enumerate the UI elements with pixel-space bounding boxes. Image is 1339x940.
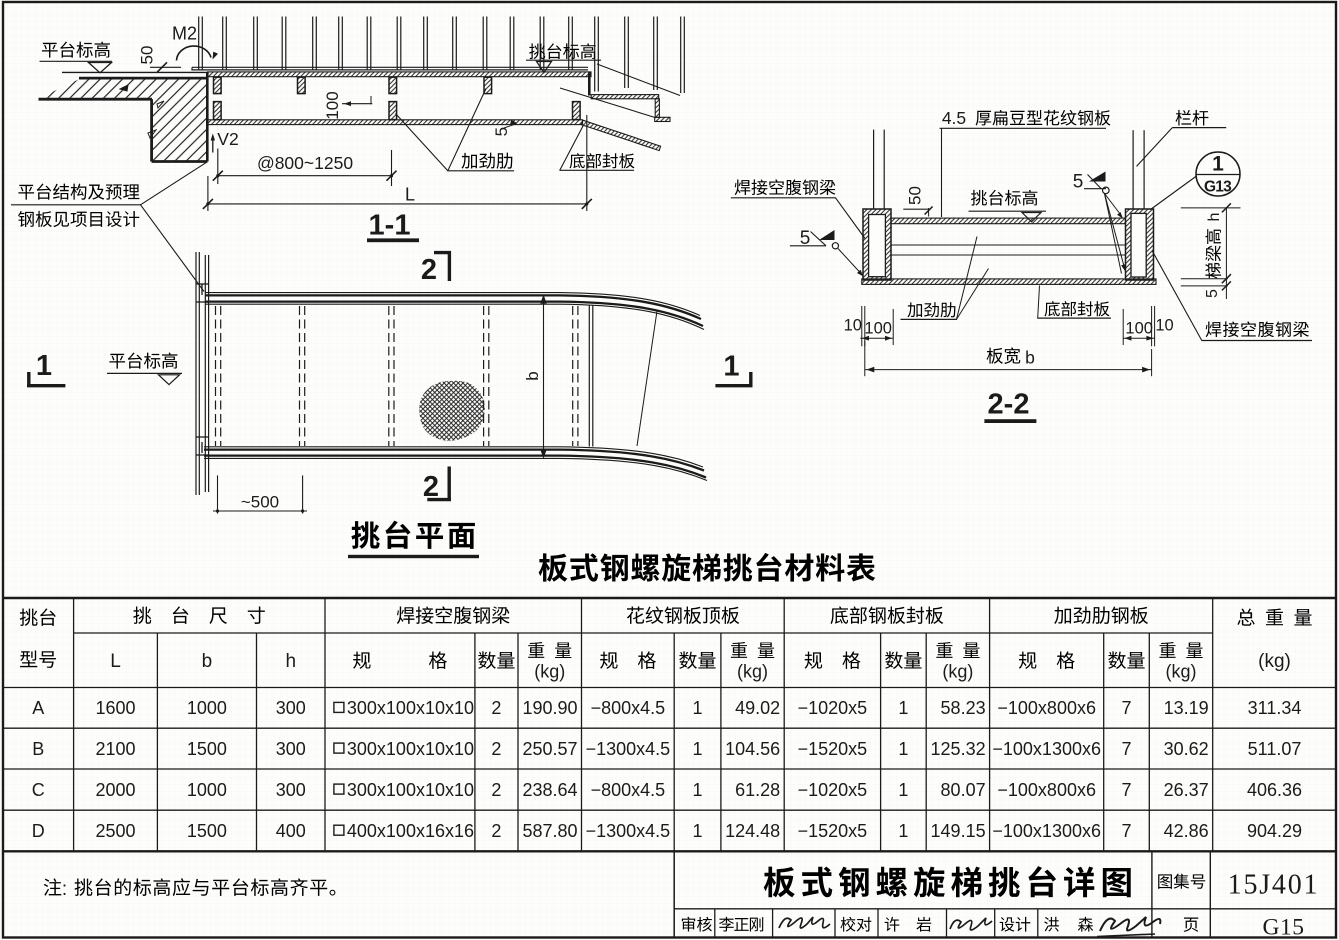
svg-text:13.19: 13.19 [1164, 698, 1209, 718]
svg-text:300x100x10x10: 300x100x10x10 [347, 698, 474, 718]
svg-text:10: 10 [844, 316, 862, 334]
svg-text:(kg): (kg) [1258, 651, 1291, 672]
svg-text:b: b [1025, 348, 1035, 368]
svg-text:b: b [202, 651, 213, 672]
svg-text:104.56: 104.56 [725, 739, 780, 759]
svg-text:L: L [405, 185, 415, 205]
svg-text:h: h [1206, 213, 1223, 222]
svg-text:−800x4.5: −800x4.5 [591, 698, 666, 718]
svg-text:300: 300 [276, 698, 306, 718]
svg-text:h: h [286, 651, 297, 672]
svg-text:42.86: 42.86 [1164, 821, 1209, 841]
svg-text:5: 5 [492, 127, 511, 136]
svg-text:61.28: 61.28 [735, 780, 780, 800]
svg-text:400x100x16x16: 400x100x16x16 [347, 821, 474, 841]
svg-text:−1300x4.5: −1300x4.5 [586, 821, 671, 841]
svg-text:−1020x5: −1020x5 [798, 698, 868, 718]
svg-text:125.32: 125.32 [931, 739, 986, 759]
svg-text:50: 50 [906, 186, 925, 205]
svg-text:~500: ~500 [241, 493, 279, 512]
svg-text:58.23: 58.23 [941, 698, 986, 718]
svg-text:−800x4.5: −800x4.5 [591, 780, 666, 800]
svg-text:2500: 2500 [95, 821, 135, 841]
svg-text:7: 7 [1121, 698, 1131, 718]
svg-text:1: 1 [692, 821, 702, 841]
svg-text:1500: 1500 [187, 821, 227, 841]
svg-text:250.57: 250.57 [522, 739, 577, 759]
svg-text:300x100x10x10: 300x100x10x10 [347, 739, 474, 759]
svg-text:1-1: 1-1 [369, 210, 411, 242]
svg-text:1: 1 [692, 698, 702, 718]
svg-text:511.07: 511.07 [1248, 739, 1302, 759]
svg-text:2: 2 [491, 821, 501, 841]
svg-text:30.62: 30.62 [1164, 739, 1209, 759]
svg-text:2: 2 [491, 698, 501, 718]
svg-text:1: 1 [898, 698, 908, 718]
svg-text:2: 2 [491, 739, 501, 759]
svg-text:1500: 1500 [187, 739, 227, 759]
svg-text:b: b [523, 371, 542, 380]
svg-text:100: 100 [1125, 319, 1153, 337]
svg-text:904.29: 904.29 [1247, 821, 1302, 841]
svg-text:(kg): (kg) [534, 661, 565, 681]
svg-text:50: 50 [138, 46, 157, 65]
svg-text:2-2: 2-2 [988, 389, 1030, 421]
svg-text:7: 7 [1121, 821, 1131, 841]
svg-text:10: 10 [1155, 316, 1173, 334]
svg-text:1: 1 [898, 821, 908, 841]
svg-text:80.07: 80.07 [941, 780, 986, 800]
svg-text:−1520x5: −1520x5 [798, 739, 868, 759]
svg-text:1: 1 [692, 780, 702, 800]
svg-text:1: 1 [898, 739, 908, 759]
svg-text:−100x1300x6: −100x1300x6 [992, 821, 1101, 841]
svg-text:124.48: 124.48 [725, 821, 780, 841]
svg-text:L: L [110, 651, 121, 672]
svg-text:149.15: 149.15 [931, 821, 986, 841]
svg-text:M2: M2 [172, 23, 197, 43]
svg-text:−1020x5: −1020x5 [798, 780, 868, 800]
svg-text:1600: 1600 [95, 698, 135, 718]
svg-text:G15: G15 [1263, 914, 1305, 940]
svg-text:D: D [32, 821, 45, 841]
svg-text:G13: G13 [1204, 179, 1232, 196]
svg-text::: : [62, 879, 67, 900]
svg-text:V2: V2 [217, 129, 238, 149]
svg-text:15J401: 15J401 [1228, 869, 1320, 900]
svg-text:2: 2 [421, 254, 437, 286]
svg-text:2100: 2100 [95, 739, 135, 759]
svg-text:B: B [32, 739, 44, 759]
svg-text:300x100x10x10: 300x100x10x10 [347, 780, 474, 800]
svg-text:2000: 2000 [95, 780, 135, 800]
svg-text:7: 7 [1121, 780, 1131, 800]
svg-text:5: 5 [1073, 172, 1084, 193]
svg-text:A: A [32, 698, 44, 718]
svg-text:7: 7 [1121, 739, 1131, 759]
svg-text:1000: 1000 [187, 780, 227, 800]
svg-text:−100x1300x6: −100x1300x6 [992, 739, 1101, 759]
svg-text:311.34: 311.34 [1248, 698, 1302, 718]
svg-text:2: 2 [491, 780, 501, 800]
svg-text:C: C [32, 780, 45, 800]
svg-text:(kg): (kg) [942, 661, 973, 681]
svg-text:5: 5 [1204, 289, 1221, 298]
svg-text:100: 100 [323, 91, 342, 119]
svg-text:−100x800x6: −100x800x6 [997, 780, 1096, 800]
svg-text:1: 1 [1212, 152, 1224, 175]
svg-text:49.02: 49.02 [735, 698, 780, 718]
svg-text:400: 400 [276, 821, 306, 841]
svg-text:−1520x5: −1520x5 [798, 821, 868, 841]
svg-text:300: 300 [276, 780, 306, 800]
svg-text:238.64: 238.64 [522, 780, 577, 800]
svg-text:300: 300 [276, 739, 306, 759]
svg-text:587.80: 587.80 [522, 821, 577, 841]
svg-text:−1300x4.5: −1300x4.5 [586, 739, 671, 759]
svg-text:406.36: 406.36 [1247, 780, 1302, 800]
svg-text:26.37: 26.37 [1164, 780, 1209, 800]
svg-text:1: 1 [36, 350, 52, 382]
svg-text:1: 1 [898, 780, 908, 800]
svg-text:1000: 1000 [187, 698, 227, 718]
svg-text:1: 1 [692, 739, 702, 759]
svg-text:190.90: 190.90 [522, 698, 577, 718]
svg-text:(kg): (kg) [737, 661, 768, 681]
svg-text:4.5: 4.5 [942, 108, 966, 128]
svg-text:(kg): (kg) [1166, 661, 1197, 681]
svg-text:@800~1250: @800~1250 [257, 153, 353, 173]
svg-text:−100x800x6: −100x800x6 [997, 698, 1096, 718]
svg-text:100: 100 [864, 319, 892, 337]
svg-text:1: 1 [723, 351, 739, 383]
